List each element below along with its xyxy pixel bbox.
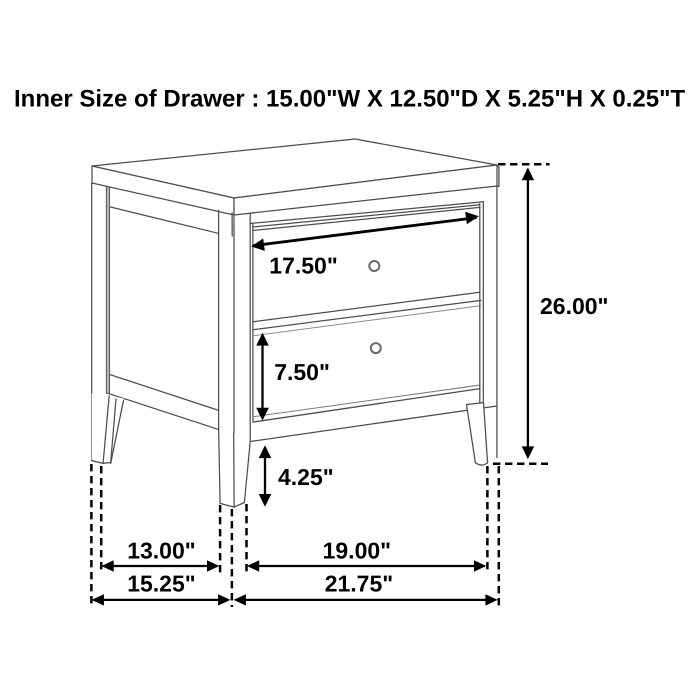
svg-text:26.00": 26.00": [540, 293, 608, 319]
svg-text:7.50": 7.50": [274, 359, 330, 385]
svg-text:13.00": 13.00": [127, 537, 195, 563]
svg-text:15.25": 15.25": [127, 571, 195, 597]
svg-text:4.25": 4.25": [278, 464, 334, 490]
svg-text:19.00": 19.00": [323, 537, 391, 563]
svg-text:17.50": 17.50": [269, 253, 337, 279]
svg-text:21.75": 21.75": [325, 571, 393, 597]
svg-text:Inner Size of Drawer : 15.00"W: Inner Size of Drawer : 15.00"W X 12.50"D…: [14, 86, 685, 113]
